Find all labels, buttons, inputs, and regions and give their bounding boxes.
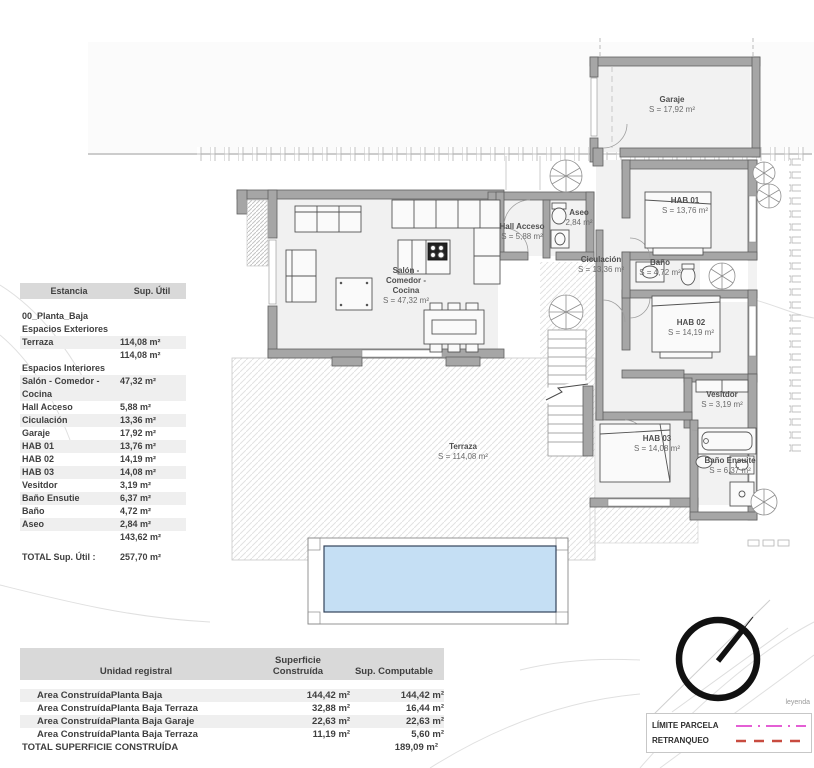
row-name: Vesitdor — [20, 479, 120, 492]
row-value: 114,08 m² — [120, 349, 186, 362]
row-name: Salón - Comedor - Cocina — [20, 375, 120, 401]
tree-icon — [753, 162, 775, 184]
row-value: 6,37 m² — [120, 492, 186, 505]
row-value: 13,76 m² — [120, 440, 186, 453]
table-row: Aseo 2,84 m² — [20, 518, 186, 531]
row-name: Baño — [20, 505, 120, 518]
row-name: Aseo — [20, 518, 120, 531]
table-row: Ciculación 13,36 m² — [20, 414, 186, 427]
row-unidad: Area ConstruídaPlanta Baja Terraza — [20, 728, 264, 741]
tree-icon — [709, 263, 735, 289]
row-unidad: Area ConstruídaPlanta Baja Garaje — [20, 715, 264, 728]
table-row: Baño 4,72 m² — [20, 505, 186, 518]
row-name: HAB 02 — [20, 453, 120, 466]
legend-item-limite-parcela: LÍMITE PARCELA — [652, 718, 806, 733]
row-name — [20, 349, 120, 362]
table-row: Hall Acceso 5,88 m² — [20, 401, 186, 414]
table-row: 114,08 m² — [20, 349, 186, 362]
row-value: 143,62 m² — [120, 531, 186, 544]
row-name: Ciculación — [20, 414, 120, 427]
retranqueo-line — [736, 738, 806, 744]
table-row: Terraza 114,08 m² — [20, 336, 186, 349]
section-espacios-interiores: Espacios Interiores — [20, 362, 186, 375]
pool — [308, 538, 568, 624]
table-row: Vesitdor 3,19 m² — [20, 479, 186, 492]
row-name — [20, 531, 120, 544]
total-value: 257,70 m² — [120, 550, 186, 564]
pool-water — [324, 546, 556, 612]
row-unidad: Area ConstruídaPlanta Baja — [20, 689, 264, 702]
estancia-table-header: Estancia Sup. Útil — [20, 283, 186, 299]
bed-icon — [600, 424, 670, 482]
construida-table-header: Unidad registral Superficie Construída S… — [20, 648, 444, 680]
sofa-icon — [295, 206, 361, 232]
stairs-icon — [546, 330, 593, 456]
table-row: Area ConstruídaPlanta Baja Garaje 22,63 … — [20, 715, 444, 728]
row-superficie: 22,63 m² — [264, 715, 350, 728]
floor-plan-sheet: Garaje S = 17,92 m² HAB 01 S = 13,76 m² … — [0, 0, 814, 768]
table-row: Area ConstruídaPlanta Baja 144,42 m² 144… — [20, 689, 444, 702]
column-header-sup-util: Sup. Útil — [118, 286, 186, 296]
fence-right — [789, 156, 801, 456]
sink-icon — [730, 456, 754, 474]
legend-caption: leyenda — [700, 699, 810, 706]
tree-icon — [757, 184, 781, 208]
row-computable: 144,42 m² — [350, 689, 444, 702]
legend-box: LÍMITE PARCELA RETRANQUEO — [646, 713, 812, 753]
tree-icon — [550, 160, 582, 192]
column-header-superficie-construida: Superficie Construída — [252, 655, 344, 677]
row-superficie: 11,19 m² — [264, 728, 350, 741]
bed-icon — [645, 192, 711, 255]
shower-icon — [730, 482, 754, 506]
row-value: 14,19 m² — [120, 453, 186, 466]
legend-item-retranqueo: RETRANQUEO — [652, 733, 806, 748]
row-name: Baño Ensutie — [20, 492, 120, 505]
limite-parcela-line — [736, 723, 806, 729]
row-value: 4,72 m² — [120, 505, 186, 518]
row-name: HAB 03 — [20, 466, 120, 479]
sink-icon — [636, 262, 664, 282]
table-row: HAB 01 13,76 m² — [20, 440, 186, 453]
tree-icon — [549, 295, 583, 329]
total-value: 189,09 m² — [342, 741, 438, 755]
row-value: 17,92 m² — [120, 427, 186, 440]
column-header-sup-computable: Sup. Computable — [344, 666, 444, 677]
row-value: 2,84 m² — [120, 518, 186, 531]
superficie-construida-table: Unidad registral Superficie Construída S… — [20, 648, 444, 755]
tree-icon — [751, 489, 777, 515]
row-superficie: 144,42 m² — [264, 689, 350, 702]
row-name: HAB 01 — [20, 440, 120, 453]
row-value: 47,32 m² — [120, 375, 186, 401]
total-label: TOTAL SUPERFICIE CONSTRUÍDA — [20, 741, 254, 755]
table-row: 143,62 m² — [20, 531, 186, 544]
toilet-icon — [696, 456, 712, 468]
dining-table-icon — [424, 303, 484, 352]
table-row: Garaje 17,92 m² — [20, 427, 186, 440]
kitchen-island-icon — [398, 240, 450, 274]
legend-label: RETRANQUEO — [652, 736, 736, 745]
table-row: Area ConstruídaPlanta Baja Terraza 11,19… — [20, 728, 444, 741]
table-row: HAB 02 14,19 m² — [20, 453, 186, 466]
porch-pillar — [247, 200, 268, 266]
row-unidad: Area ConstruídaPlanta Baja Terraza — [20, 702, 264, 715]
floorplan-page: { "title": "00_Planta_Baja", "plan": { "… — [0, 0, 814, 768]
bed-icon — [652, 296, 720, 358]
row-superficie: 32,88 m² — [264, 702, 350, 715]
total-label: TOTAL Sup. Útil : — [20, 550, 120, 564]
column-header-unidad-registral: Unidad registral — [20, 666, 252, 677]
estancia-table: Estancia Sup. Útil 00_Planta_Baja Espaci… — [20, 283, 186, 564]
plant-label: 00_Planta_Baja — [20, 310, 186, 323]
table-row: HAB 03 14,08 m² — [20, 466, 186, 479]
sink-icon — [551, 230, 569, 248]
row-value: 3,19 m² — [120, 479, 186, 492]
row-value: 5,88 m² — [120, 401, 186, 414]
column-header-estancia: Estancia — [20, 286, 118, 296]
section-espacios-exteriores: Espacios Exteriores — [20, 323, 186, 336]
row-name: Terraza — [20, 336, 120, 349]
row-computable: 22,63 m² — [350, 715, 444, 728]
coffee-table-icon — [336, 278, 372, 310]
toilet-icon — [552, 203, 566, 224]
row-value: 14,08 m² — [120, 466, 186, 479]
row-name: Garaje — [20, 427, 120, 440]
row-value: 114,08 m² — [120, 336, 186, 349]
row-value: 13,36 m² — [120, 414, 186, 427]
total-sup-util-row: TOTAL Sup. Útil : 257,70 m² — [20, 550, 186, 564]
row-name: Hall Acceso — [20, 401, 120, 414]
row-computable: 16,44 m² — [350, 702, 444, 715]
total-spacer — [254, 741, 342, 755]
table-row: Area ConstruídaPlanta Baja Terraza 32,88… — [20, 702, 444, 715]
row-computable: 5,60 m² — [350, 728, 444, 741]
toilet-icon — [681, 264, 695, 285]
total-superficie-row: TOTAL SUPERFICIE CONSTRUÍDA 189,09 m² — [20, 741, 444, 755]
legend-label: LÍMITE PARCELA — [652, 721, 736, 730]
wardrobe-icon — [696, 380, 748, 392]
table-row: Baño Ensutie 6,37 m² — [20, 492, 186, 505]
table-row: Salón - Comedor - Cocina 47,32 m² — [20, 375, 186, 401]
bathtub-icon — [698, 428, 756, 454]
sofa-icon — [286, 250, 316, 302]
